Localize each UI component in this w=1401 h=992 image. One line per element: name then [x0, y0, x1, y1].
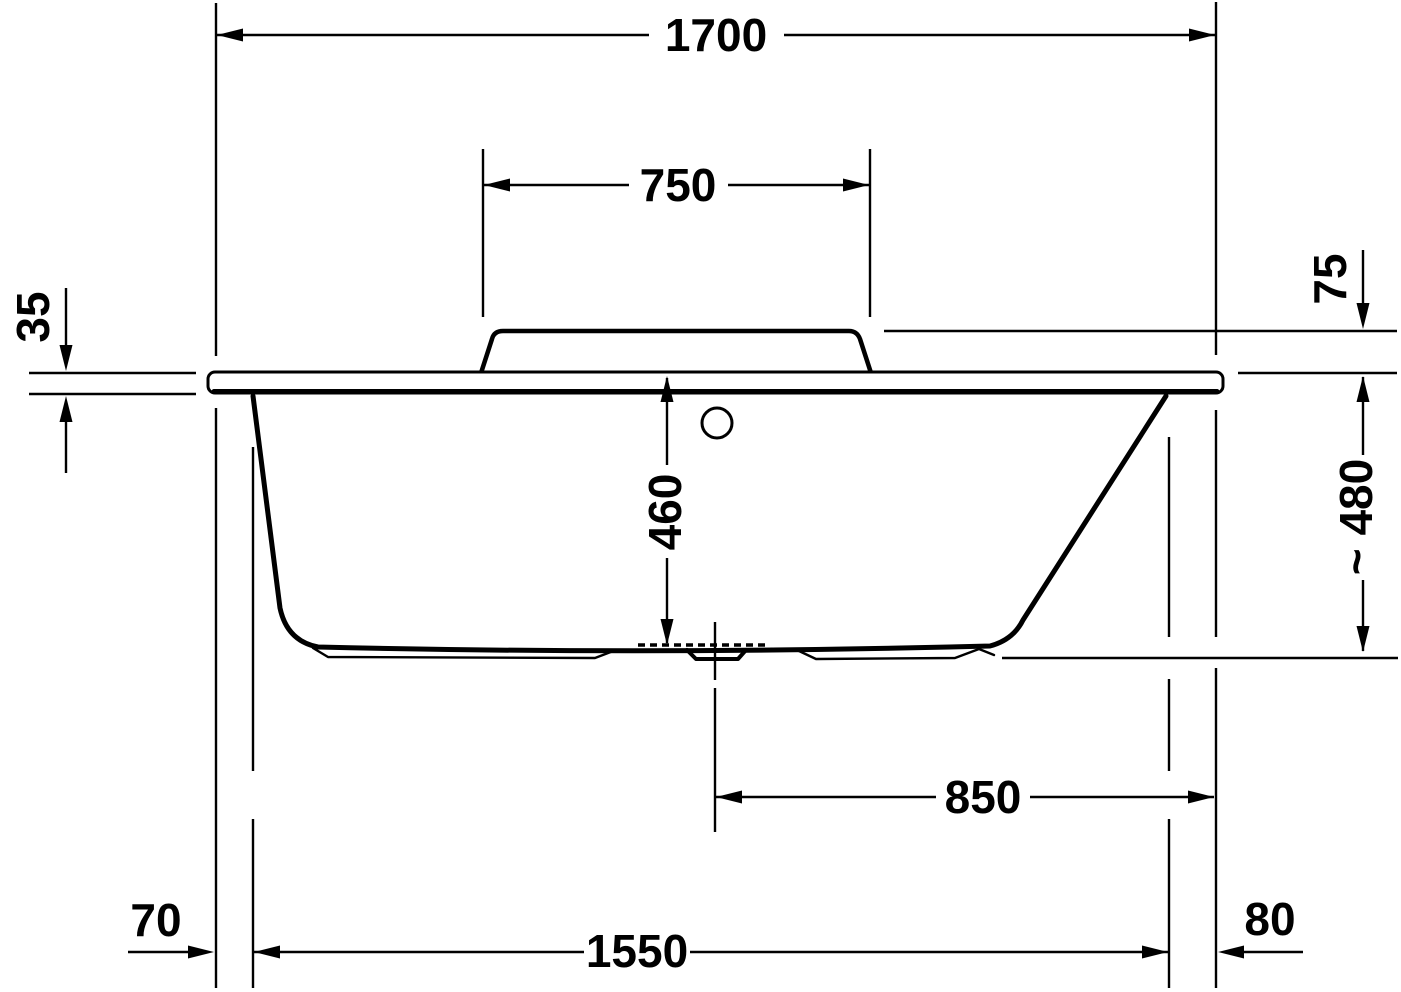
arrowhead-left — [1218, 946, 1244, 959]
dim-base-offset-right: 80 — [1218, 893, 1303, 959]
arrowhead-left — [217, 29, 243, 42]
dim-overall-length: 1700 — [216, 2, 1216, 988]
arrowhead-up — [60, 396, 73, 422]
arrowhead-left — [484, 179, 510, 192]
arrowhead-left — [716, 791, 742, 804]
arrowhead-right — [843, 179, 869, 192]
arrowhead-right — [1142, 946, 1168, 959]
arrowhead-right — [1189, 29, 1215, 42]
arrowhead-down — [661, 619, 674, 645]
dim-base-offset-left-label: 70 — [130, 894, 181, 946]
arrowhead-left — [254, 946, 280, 959]
dim-deck-to-backrest-top-label: 75 — [1304, 253, 1356, 304]
dim-base-length-label: 1550 — [586, 925, 688, 977]
dim-base-length: 1550 — [253, 437, 1169, 988]
dim-backrest-width-label: 750 — [640, 159, 717, 211]
dim-inner-depth-label: 460 — [639, 474, 691, 551]
arrowhead-up — [1357, 376, 1370, 402]
dim-rim-thickness: 35 — [7, 288, 196, 473]
dim-overall-length-label: 1700 — [665, 9, 767, 61]
tub-profile — [208, 331, 1223, 659]
overflow-hole — [702, 408, 732, 438]
arrowhead-right — [1188, 791, 1214, 804]
arrowhead-down — [1357, 626, 1370, 652]
dim-drain-offset-label: 850 — [945, 771, 1022, 823]
dim-rim-thickness-label: 35 — [7, 291, 59, 342]
arrowhead-down — [1357, 303, 1370, 329]
dim-base-offset-right-label: 80 — [1244, 893, 1295, 945]
dim-base-offset-left: 70 — [128, 894, 214, 959]
dim-overall-height: ~ 480 — [1002, 373, 1398, 658]
dim-overall-height-label: ~ 480 — [1330, 459, 1382, 575]
dim-deck-to-backrest-top: 75 — [884, 250, 1397, 331]
backrest-outline — [481, 331, 871, 373]
dim-backrest-width: 750 — [483, 149, 870, 317]
arrowhead-down — [60, 345, 73, 371]
arrowhead-right — [188, 946, 214, 959]
dim-inner-depth: 460 — [639, 376, 691, 645]
technical-drawing: 1700 750 35 75 ~ 480 — [0, 0, 1401, 992]
